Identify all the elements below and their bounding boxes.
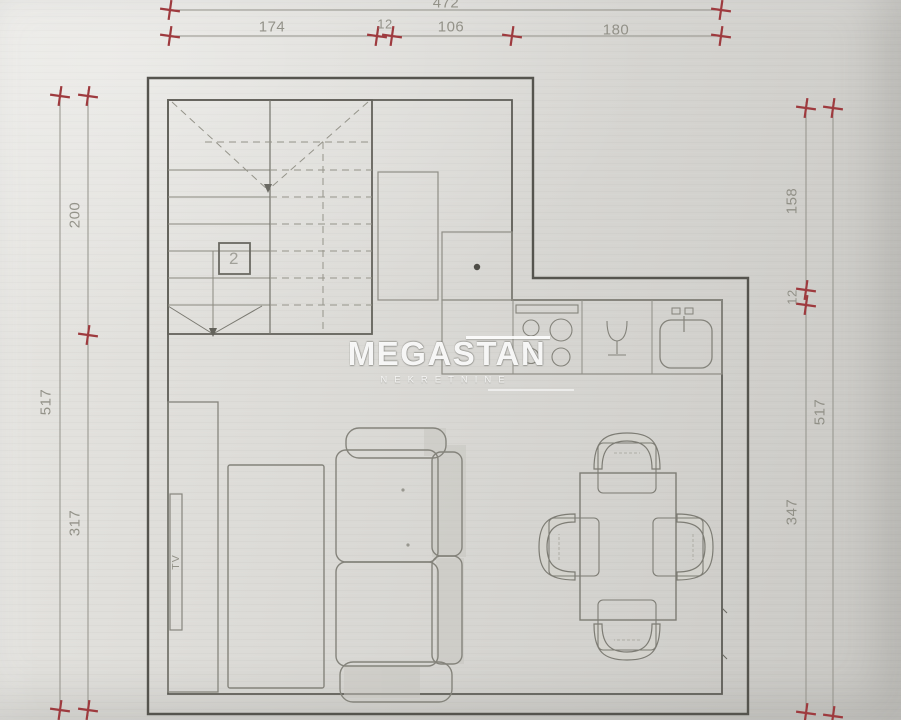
dim-label-left-total: 517: [38, 389, 55, 416]
dim-label-top-seg-180: 180: [603, 22, 630, 39]
dim-label-right-seg-347: 347: [784, 499, 801, 526]
shaft-dot: [474, 264, 480, 270]
sofa-highlight-shading: [344, 428, 466, 698]
watermark-overline: [466, 336, 550, 339]
dim-label-right-total: 517: [812, 399, 829, 426]
dining-chair-top: [594, 433, 660, 493]
dim-label-top-total: 472: [433, 0, 460, 12]
staircase: [168, 100, 372, 337]
dim-label-left-seg-200: 200: [67, 202, 84, 229]
sofa-seat: [336, 450, 438, 562]
dim-label-top-seg-12: 12: [377, 17, 392, 32]
wardrobe: [378, 172, 438, 300]
sink-basin: [660, 320, 712, 368]
coffee-table: [228, 465, 324, 688]
burner: [552, 348, 570, 366]
dim-label-top-seg-174: 174: [259, 19, 286, 36]
dining-table: [580, 473, 676, 620]
tv-bench: [168, 402, 218, 692]
dining-chair-left: [539, 514, 599, 580]
sofa: [336, 428, 466, 702]
watermark-underline: [488, 389, 574, 391]
dim-label-right-seg-12: 12: [785, 289, 800, 304]
watermark-subtitle: NEKRETNINE: [380, 375, 511, 386]
burner: [550, 319, 572, 341]
sink: [660, 308, 712, 368]
dining-chair-right: [653, 514, 713, 580]
watermark-brand: MEGASTAN: [348, 335, 546, 373]
floor-plan-photo: 472 174 12 106 180 517 200 317 158 12 34…: [0, 0, 901, 720]
sofa-seat: [336, 562, 438, 666]
burner: [523, 320, 539, 336]
stair-direction-arrow: [264, 184, 272, 193]
dim-label-top-seg-106: 106: [438, 19, 465, 36]
dim-label-right-seg-158: 158: [784, 188, 801, 215]
shaft-box: [442, 232, 512, 300]
tv-label: TV: [170, 554, 182, 569]
dining-chair-bottom: [594, 600, 660, 660]
floor-number-label: 2: [229, 249, 239, 269]
dim-label-left-seg-317: 317: [67, 510, 84, 537]
stair-hidden-lines: [172, 102, 372, 334]
glass-symbol: [607, 321, 627, 355]
